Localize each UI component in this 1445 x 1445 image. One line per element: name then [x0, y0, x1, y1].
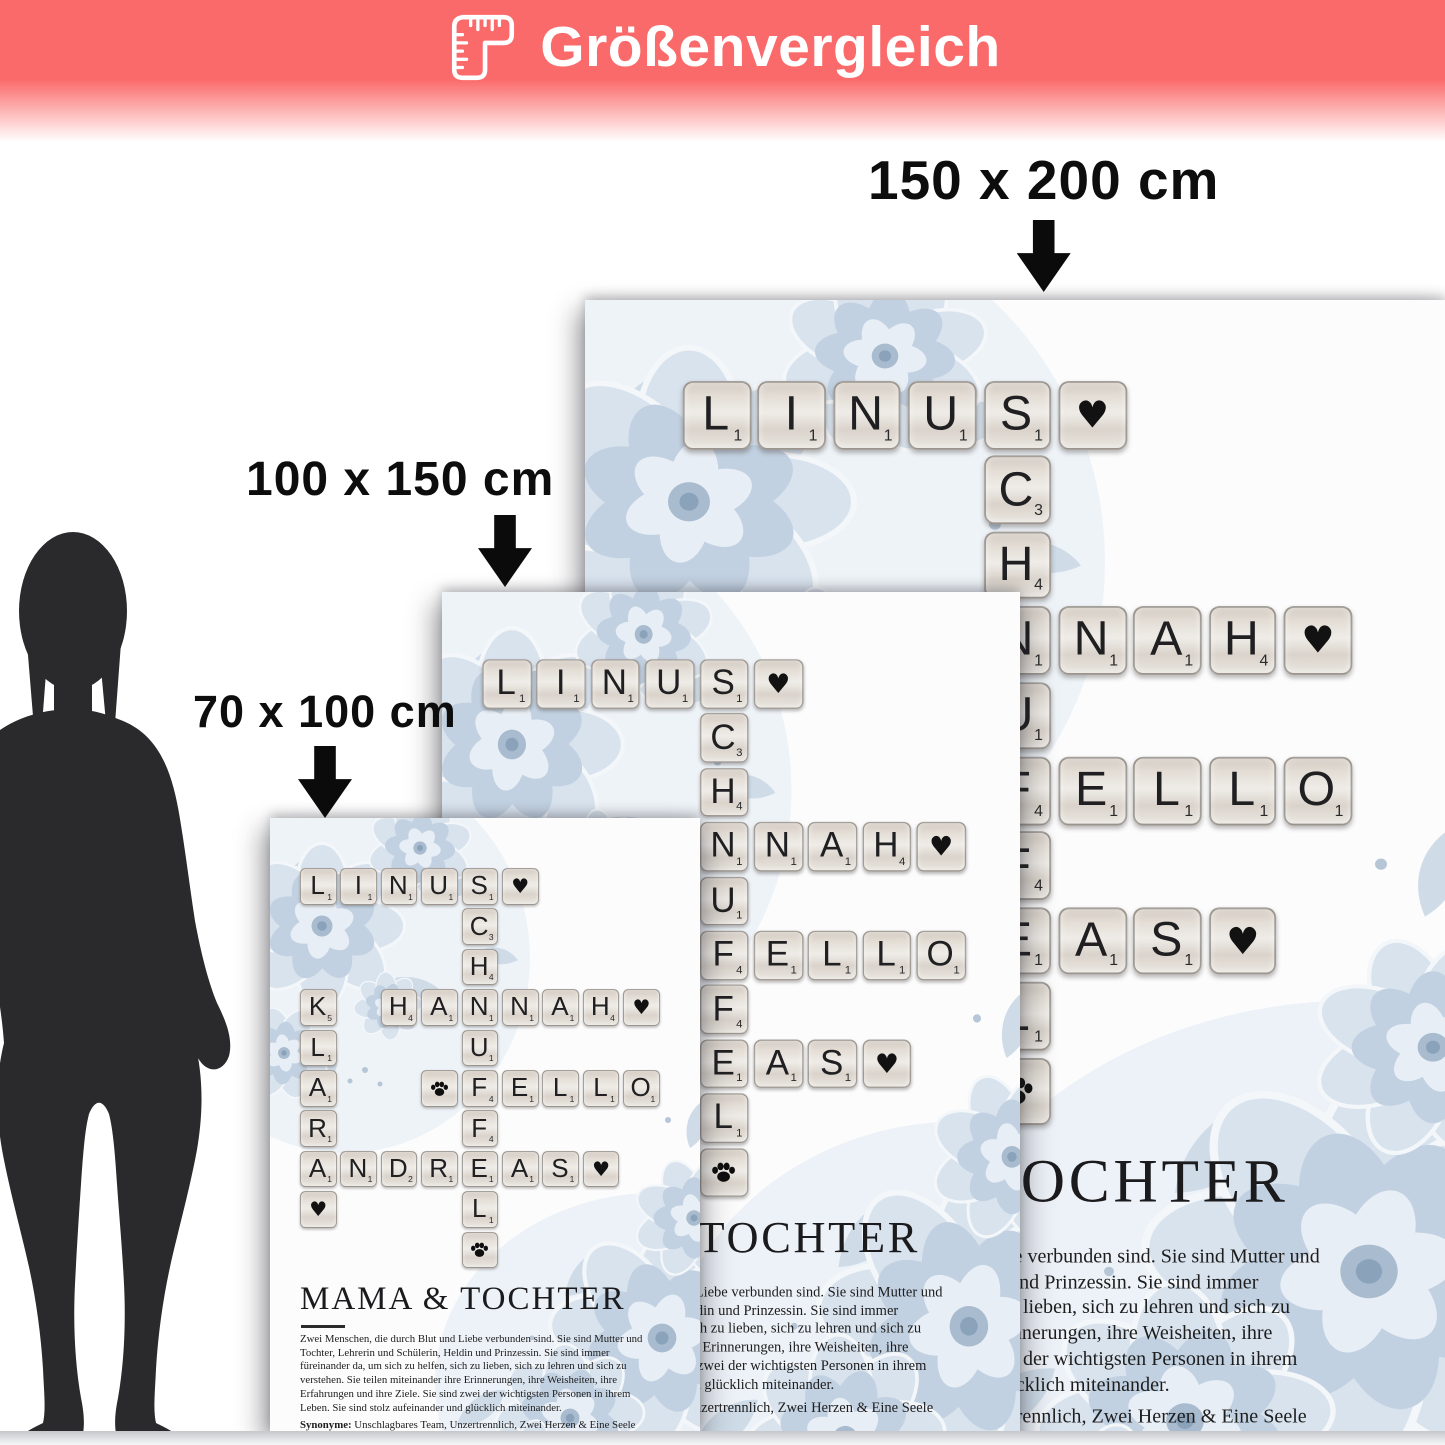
tile-value: 1 [845, 1072, 851, 1083]
scrabble-tile-N: N1 [700, 822, 749, 871]
tile-letter: A [511, 1155, 528, 1181]
scrabble-tile-heart: ♥ [862, 1039, 911, 1088]
scrabble-tile-N: N1 [754, 822, 803, 871]
tile-letter: N [510, 993, 529, 1019]
scrabble-tile-U: U1 [462, 1030, 499, 1067]
tile-value: 1 [682, 692, 688, 703]
tile-letter: L [496, 665, 515, 700]
tile-letter: H [998, 539, 1033, 587]
poster-content: L1I1N1U1S1♥C3H4K5H4A1N1N1A1H4♥L1U1A1F4E1… [270, 818, 700, 1432]
scrabble-crossword: L1I1N1U1S1♥C3H4K5H4A1N1N1A1H4♥L1U1A1F4E1… [300, 868, 669, 1278]
page-title: Größenvergleich [540, 8, 1000, 86]
tile-value: 1 [570, 1014, 575, 1023]
tile-value: 1 [327, 1095, 332, 1104]
tile-value: 5 [327, 1014, 332, 1023]
scrabble-tile-L: L1 [1209, 757, 1277, 825]
scrabble-tile-H: H4 [862, 822, 911, 871]
tile-letter: A [766, 1045, 789, 1080]
scrabble-tile-A: A1 [502, 1151, 539, 1188]
tile-value: 1 [1184, 802, 1193, 818]
scrabble-tile-H: H4 [983, 531, 1051, 599]
tile-letter: E [711, 1045, 734, 1080]
tile-value: 4 [1034, 877, 1043, 893]
tile-letter: U [923, 389, 958, 437]
tile-letter: L [822, 936, 841, 971]
tile-letter: L [472, 1195, 486, 1221]
scrabble-tile-C: C3 [700, 713, 749, 762]
scrabble-tile-F: F4 [700, 931, 749, 980]
scrabble-tile-S: S1 [808, 1039, 857, 1088]
tile-value: 1 [953, 964, 959, 975]
heart-icon: ♥ [864, 1041, 910, 1087]
tile-letter: C [710, 719, 735, 754]
tile-value: 1 [368, 893, 373, 902]
scrabble-tile-S: S1 [983, 381, 1051, 449]
tile-value: 1 [1260, 802, 1269, 818]
tile-value: 4 [489, 973, 494, 982]
scrabble-tile-H: H4 [462, 949, 499, 986]
scrabble-tile-E: E1 [502, 1070, 539, 1107]
tile-letter: N [710, 828, 735, 863]
scrabble-tile-S: S1 [700, 659, 749, 708]
scrabble-tile-S: S1 [462, 868, 499, 905]
tile-value: 1 [448, 893, 453, 902]
tile-letter: L [702, 389, 729, 437]
scrabble-tile-L: L1 [808, 931, 857, 980]
poster-description: Zwei Menschen, die durch Blut und Liebe … [300, 1333, 658, 1415]
tile-value: 1 [1184, 953, 1193, 969]
poster-70x100: L1I1N1U1S1♥C3H4K5H4A1N1N1A1H4♥L1U1A1F4E1… [270, 818, 700, 1432]
tile-value: 1 [489, 1175, 494, 1184]
tile-value: 4 [1034, 802, 1043, 818]
heart-icon: ♥ [1060, 383, 1124, 447]
scrabble-tile-H: H4 [381, 989, 418, 1026]
tile-letter: U [470, 1034, 489, 1060]
tile-value: 1 [790, 1072, 796, 1083]
person-silhouette [0, 523, 238, 1445]
down-arrow-icon [478, 515, 532, 587]
tile-value: 1 [736, 692, 742, 703]
tile-value: 1 [809, 427, 818, 443]
scrabble-tile-N: N1 [833, 381, 901, 449]
tile-letter: L [714, 1099, 733, 1134]
tile-value: 1 [1109, 953, 1118, 969]
tile-letter: K [309, 993, 326, 1019]
scrabble-tile-N: N1 [381, 868, 418, 905]
tile-letter: S [820, 1045, 843, 1080]
paw-icon [701, 1149, 747, 1195]
scrabble-tile-H: H4 [583, 989, 620, 1026]
tile-value: 3 [736, 746, 742, 757]
tile-letter: O [1298, 765, 1336, 813]
size-label-100x150: 100 x 150 cm [246, 452, 554, 587]
tile-value: 1 [570, 1175, 575, 1184]
scrabble-tile-paw [462, 1232, 499, 1269]
tile-letter: E [470, 1155, 487, 1181]
tile-value: 4 [489, 1135, 494, 1144]
tile-letter: H [470, 953, 489, 979]
tile-letter: F [712, 991, 733, 1026]
size-comparison-page: Größenvergleich 150 x 200 cm 100 x 150 c… [0, 0, 1445, 1445]
paw-icon [463, 1233, 498, 1268]
tile-value: 4 [736, 801, 742, 812]
tile-letter: N [602, 665, 627, 700]
tile-value: 1 [489, 1014, 494, 1023]
tile-letter: N [848, 389, 883, 437]
tile-value: 1 [628, 692, 634, 703]
tile-value: 4 [1260, 652, 1269, 668]
scrabble-tile-E: E1 [700, 1039, 749, 1088]
scrabble-tile-S: S1 [542, 1151, 579, 1188]
tile-value: 4 [408, 1014, 413, 1023]
tile-letter: L [310, 1034, 324, 1060]
tile-value: 4 [610, 1014, 615, 1023]
heading-underline [301, 1325, 345, 1328]
tile-value: 4 [1034, 577, 1043, 593]
tile-value: 1 [1109, 802, 1118, 818]
tile-value: 1 [884, 427, 893, 443]
size-label-text: 100 x 150 cm [246, 452, 554, 507]
tile-value: 1 [736, 1072, 742, 1083]
tile-letter: S [1000, 389, 1032, 437]
tile-value: 1 [736, 855, 742, 866]
tile-value: 1 [650, 1095, 655, 1104]
scrabble-tile-F: F4 [462, 1070, 499, 1107]
scrabble-tile-heart: ♥ [1059, 381, 1127, 449]
scrabble-tile-N: N1 [1059, 606, 1127, 674]
heart-icon: ♥ [1286, 608, 1350, 672]
tile-value: 1 [845, 964, 851, 975]
header-banner: Größenvergleich [0, 0, 1445, 142]
heart-icon: ♥ [918, 823, 964, 869]
scrabble-tile-A: A1 [300, 1070, 337, 1107]
tile-value: 4 [736, 964, 742, 975]
tile-letter: E [1075, 765, 1107, 813]
tile-value: 2 [408, 1175, 413, 1184]
tile-letter: F [471, 1074, 487, 1100]
tile-letter: I [785, 389, 798, 437]
scrabble-tile-N: N1 [502, 989, 539, 1026]
tile-value: 1 [529, 1095, 534, 1104]
tile-value: 1 [1335, 802, 1344, 818]
scrabble-tile-C: C3 [983, 456, 1051, 524]
tile-letter: F [471, 1115, 487, 1141]
tile-value: 1 [368, 1175, 373, 1184]
tile-value: 1 [790, 855, 796, 866]
tile-letter: H [1224, 614, 1259, 662]
tile-value: 1 [519, 692, 525, 703]
size-label-70x100: 70 x 100 cm [193, 686, 457, 818]
tile-value: 1 [408, 893, 413, 902]
scrabble-tile-A: A1 [1059, 907, 1127, 975]
scrabble-tile-F: F4 [700, 985, 749, 1034]
size-label-150x200: 150 x 200 cm [868, 148, 1219, 292]
tile-letter: S [551, 1155, 568, 1181]
heart-icon: ♥ [1211, 909, 1275, 973]
tile-value: 1 [790, 964, 796, 975]
tile-letter: N [765, 828, 790, 863]
scrabble-tile-U: U1 [908, 381, 976, 449]
tile-value: 3 [489, 933, 494, 942]
heart-icon: ♥ [755, 661, 801, 707]
scrabble-tile-heart: ♥ [623, 989, 660, 1026]
tile-letter: O [631, 1074, 651, 1100]
scrabble-tile-D: D2 [381, 1151, 418, 1188]
tile-value: 1 [489, 1216, 494, 1225]
scrabble-tile-heart: ♥ [917, 822, 966, 871]
tile-value: 4 [899, 855, 905, 866]
tile-value: 1 [899, 964, 905, 975]
tile-value: 4 [736, 1018, 742, 1029]
scrabble-tile-L: L1 [583, 1070, 620, 1107]
tile-value: 1 [1034, 652, 1043, 668]
tile-value: 1 [327, 1175, 332, 1184]
scrabble-tile-U: U1 [700, 876, 749, 925]
scrabble-tile-H: H4 [700, 768, 749, 817]
tile-letter: N [1074, 614, 1109, 662]
tile-value: 1 [327, 893, 332, 902]
scrabble-tile-A: A1 [421, 989, 458, 1026]
scrabble-tile-F: F4 [462, 1110, 499, 1147]
size-label-text: 70 x 100 cm [193, 686, 457, 738]
tile-value: 1 [1109, 652, 1118, 668]
tile-value: 1 [1034, 427, 1043, 443]
tile-value: 1 [448, 1014, 453, 1023]
tile-value: 1 [529, 1014, 534, 1023]
tile-letter: I [355, 872, 362, 898]
tile-letter: C [998, 464, 1033, 512]
tile-value: 1 [734, 427, 743, 443]
tile-letter: L [876, 936, 895, 971]
tile-letter: A [309, 1074, 326, 1100]
tile-letter: I [556, 665, 566, 700]
scrabble-tile-C: C3 [462, 908, 499, 945]
tile-value: 4 [489, 1095, 494, 1104]
tile-letter: D [389, 1155, 408, 1181]
scrabble-tile-paw [421, 1070, 458, 1107]
tile-letter: A [820, 828, 843, 863]
scrabble-tile-L: L1 [482, 659, 531, 708]
scrabble-tile-A: A1 [754, 1039, 803, 1088]
scrabble-tile-E: E1 [462, 1151, 499, 1188]
tile-value: 1 [1034, 727, 1043, 743]
poster-heading: MAMA & TOCHTER [300, 1281, 626, 1317]
down-arrow-icon [298, 746, 352, 818]
scrabble-tile-U: U1 [645, 659, 694, 708]
tile-letter: L [553, 1074, 567, 1100]
tile-letter: L [593, 1074, 607, 1100]
synonyms-label: Synonyme: [300, 1419, 352, 1431]
scrabble-tile-A: A1 [300, 1151, 337, 1188]
tile-letter: A [430, 993, 447, 1019]
heart-icon: ♥ [584, 1152, 619, 1187]
scrabble-tile-N: N1 [462, 989, 499, 1026]
poster-text-block: Zwei Menschen, die durch Blut und Liebe … [300, 1333, 658, 1432]
tile-value: 1 [489, 1054, 494, 1063]
paw-icon [422, 1071, 457, 1106]
scrabble-tile-O: O1 [623, 1070, 660, 1107]
scrabble-tile-I: I1 [340, 868, 377, 905]
tile-letter: H [710, 773, 735, 808]
scrabble-tile-L: L1 [683, 381, 751, 449]
tile-letter: O [927, 936, 954, 971]
scrabble-tile-L: L1 [700, 1094, 749, 1143]
tile-letter: F [712, 936, 733, 971]
tile-value: 1 [610, 1095, 615, 1104]
tile-letter: H [389, 993, 408, 1019]
tile-letter: U [710, 882, 735, 917]
scrabble-tile-U: U1 [421, 868, 458, 905]
scrabble-tile-heart: ♥ [754, 659, 803, 708]
scrabble-tile-L: L1 [300, 868, 337, 905]
tile-value: 1 [1034, 1028, 1043, 1044]
tile-value: 1 [327, 1135, 332, 1144]
tile-value: 1 [1034, 953, 1043, 969]
scrabble-tile-L: L1 [1134, 757, 1202, 825]
tile-letter: A [1075, 915, 1107, 963]
tile-letter: U [429, 872, 448, 898]
down-arrow-icon [1017, 220, 1071, 292]
tile-letter: N [389, 872, 408, 898]
tile-value: 1 [570, 1095, 575, 1104]
scrabble-tile-R: R1 [421, 1151, 458, 1188]
tile-letter: E [766, 936, 789, 971]
tile-value: 1 [327, 1054, 332, 1063]
tile-letter: R [429, 1155, 448, 1181]
tile-letter: H [873, 828, 898, 863]
scrabble-tile-R: R1 [300, 1110, 337, 1147]
tile-value: 1 [1184, 652, 1193, 668]
tile-value: 1 [489, 893, 494, 902]
size-label-text: 150 x 200 cm [868, 148, 1219, 212]
scrabble-tile-E: E1 [1059, 757, 1127, 825]
tile-letter: L [1153, 765, 1180, 813]
tile-letter: A [309, 1155, 326, 1181]
scrabble-tile-heart: ♥ [502, 868, 539, 905]
heart-icon: ♥ [301, 1192, 336, 1227]
scrabble-tile-I: I1 [537, 659, 586, 708]
tile-letter: R [308, 1115, 327, 1141]
tile-letter: E [511, 1074, 528, 1100]
synonyms-text: Unschlagbares Team, Unzertrennlich, Zwei… [354, 1419, 635, 1431]
scrabble-tile-paw [700, 1148, 749, 1197]
tile-letter: U [656, 665, 681, 700]
scrabble-tile-A: A1 [542, 989, 579, 1026]
tile-letter: C [470, 913, 489, 939]
scrabble-tile-O: O1 [1284, 757, 1352, 825]
ruler-icon [444, 8, 522, 86]
scrabble-tile-heart: ♥ [1209, 907, 1277, 975]
scrabble-tile-A: A1 [808, 822, 857, 871]
tile-letter: N [348, 1155, 367, 1181]
scrabble-tile-K: K5 [300, 989, 337, 1026]
scrabble-tile-L: L1 [542, 1070, 579, 1107]
tile-value: 1 [573, 692, 579, 703]
tile-value: 1 [448, 1175, 453, 1184]
heart-icon: ♥ [624, 990, 659, 1025]
tile-value: 1 [845, 855, 851, 866]
tile-letter: L [310, 872, 324, 898]
scrabble-tile-L: L1 [862, 931, 911, 980]
scrabble-tile-E: E1 [754, 931, 803, 980]
tile-letter: A [551, 993, 568, 1019]
tile-letter: H [591, 993, 610, 1019]
tile-value: 1 [736, 1126, 742, 1137]
scrabble-tile-L: L1 [300, 1030, 337, 1067]
scrabble-tile-I: I1 [758, 381, 826, 449]
scrabble-tile-N: N1 [340, 1151, 377, 1188]
scrabble-tile-L: L1 [462, 1191, 499, 1228]
tile-value: 3 [1034, 502, 1043, 518]
scrabble-tile-H: H4 [1209, 606, 1277, 674]
tile-value: 1 [959, 427, 968, 443]
tile-letter: L [1228, 765, 1255, 813]
scrabble-tile-A: A1 [1134, 606, 1202, 674]
scrabble-tile-N: N1 [591, 659, 640, 708]
tile-letter: S [1150, 915, 1182, 963]
tile-letter: S [470, 872, 487, 898]
tile-value: 1 [529, 1175, 534, 1184]
tile-letter: A [1150, 614, 1182, 662]
tile-value: 1 [736, 909, 742, 920]
floor-strip [0, 1431, 1445, 1445]
heart-icon: ♥ [503, 869, 538, 904]
tile-letter: S [711, 665, 734, 700]
scrabble-tile-heart: ♥ [300, 1191, 337, 1228]
scrabble-tile-S: S1 [1134, 907, 1202, 975]
tile-letter: N [470, 993, 489, 1019]
scrabble-tile-heart: ♥ [583, 1151, 620, 1188]
scrabble-tile-heart: ♥ [1284, 606, 1352, 674]
scrabble-tile-O: O1 [917, 931, 966, 980]
